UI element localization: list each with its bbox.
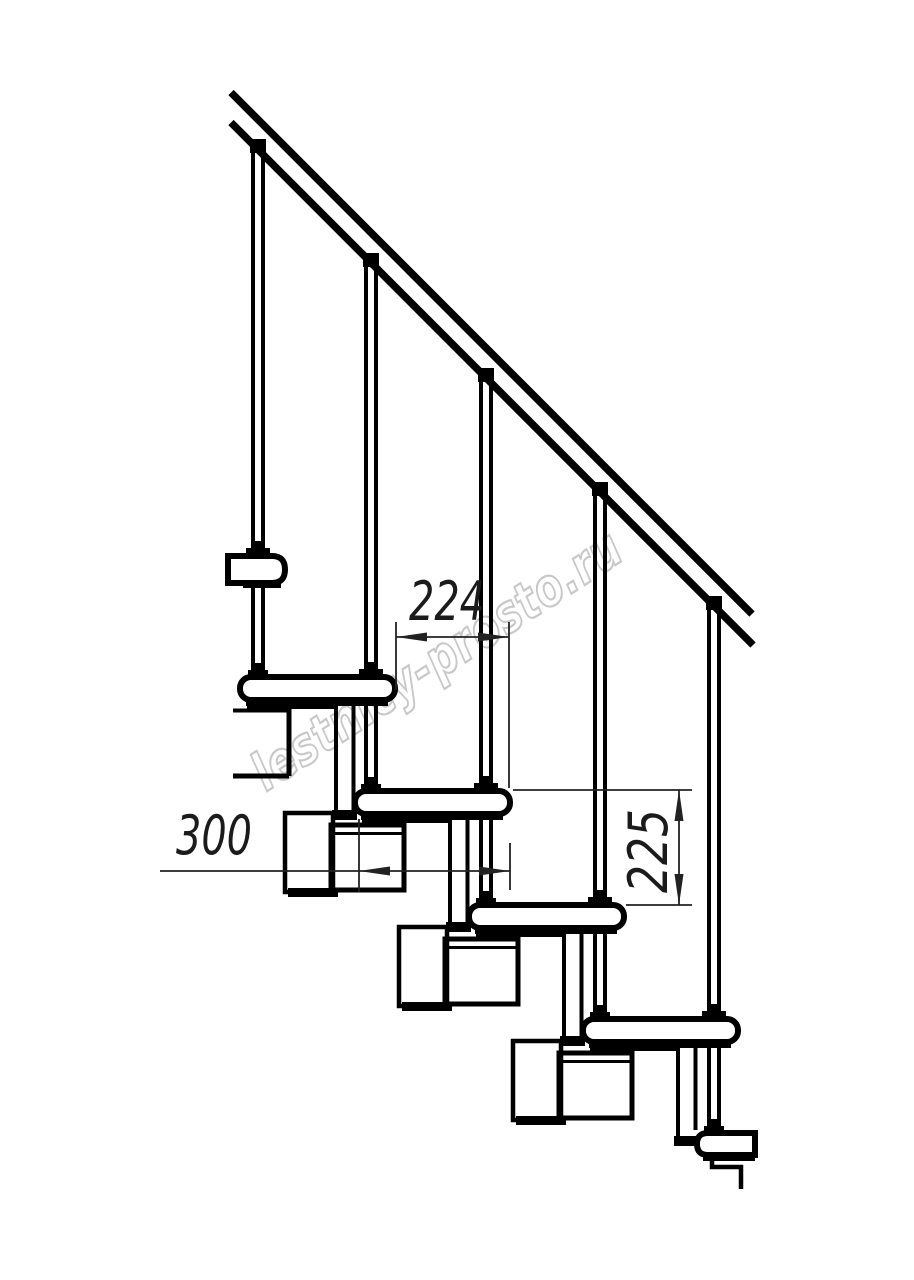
baluster-5: [709, 604, 719, 1133]
step-module-4: [513, 1041, 632, 1125]
tread-2: [355, 791, 510, 814]
pipe-cap-4: [674, 1136, 699, 1146]
watermark-text: lestnicy-prosto.ru: [240, 518, 633, 803]
dimension-300-label: 300: [176, 804, 252, 867]
tread-1: [240, 677, 395, 700]
pipe-cap-2: [446, 922, 471, 932]
rail-collar-icon: [706, 596, 722, 610]
pipe-cap-3: [560, 1036, 585, 1046]
rail-collar-icon: [250, 139, 266, 153]
module-pipe-4: [678, 1041, 696, 1144]
staircase-technical-drawing: lestnicy-prosto.ru: [0, 0, 914, 1280]
baluster-1: [253, 148, 263, 677]
dimension-225-label: 225: [617, 809, 680, 893]
step-module-2: [285, 813, 404, 897]
tread-0-fragment: [228, 556, 285, 583]
tread-3: [469, 905, 624, 928]
tread-5-cut: [697, 1133, 755, 1155]
rail-collar-icon: [478, 368, 494, 382]
rail-collar-icon: [363, 253, 379, 267]
pipe-cap-1: [332, 810, 357, 820]
rail-collar-icon: [592, 482, 608, 496]
module-pipe-3: [564, 927, 582, 1044]
tread-4: [583, 1019, 738, 1042]
bottom-cut-step: [712, 1161, 741, 1189]
dimension-224-label: 224: [409, 570, 485, 633]
step-module-3: [399, 927, 518, 1011]
